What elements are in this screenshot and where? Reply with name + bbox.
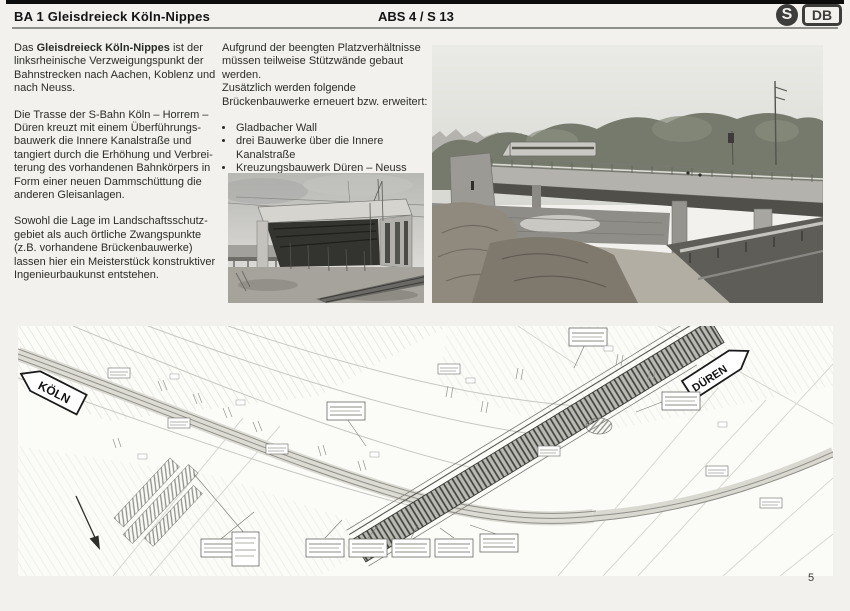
list-item: drei Bauwerke über die Innere Kanalstraß…	[235, 135, 428, 162]
construction-photo-viaduct	[432, 45, 823, 303]
construction-photo-overpass	[228, 173, 424, 303]
paragraph-intro: Das Gleisdreieck Köln-Nippes ist der lin…	[14, 42, 220, 96]
text-column-left: Das Gleisdreieck Köln-Nippes ist der lin…	[14, 42, 220, 296]
intro-bold-term: Gleisdreieck Köln-Nippes	[37, 42, 170, 54]
paragraph-landschaft: Sowohl die Lage im Landschaftsschutz­geb…	[14, 215, 220, 282]
intro-prefix: Das	[14, 42, 37, 54]
paragraph-trasse: Die Trasse der S-Bahn Köln – Horrem – Dü…	[14, 109, 220, 203]
paragraph-platz: Aufgrund der beengten Platzverhältnisse …	[222, 42, 428, 82]
list-item: Gladbacher Wall	[235, 122, 428, 135]
page-number: 5	[808, 572, 814, 584]
header-section-code: ABS 4 / S 13	[378, 9, 454, 24]
header-rule	[12, 27, 838, 29]
brochure-page: BA 1 Gleisdreieck Köln-Nippes ABS 4 / S …	[0, 0, 850, 611]
page-title: BA 1 Gleisdreieck Köln-Nippes	[14, 9, 210, 24]
track-plan-drawing: KÖLN DÜREN	[18, 326, 833, 576]
db-logo-icon: DB	[802, 4, 842, 26]
db-letters: DB	[812, 7, 832, 23]
text-column-middle: Aufgrund der beengten Platzverhältnisse …	[222, 42, 428, 176]
paragraph-zusaetzlich: Zusätzlich werden folgende Brückenbauwer…	[222, 82, 428, 109]
sbahn-logo-icon: S	[776, 4, 798, 26]
top-rule	[6, 0, 844, 4]
sbahn-letter: S	[782, 6, 793, 23]
bridge-list: Gladbacher Wall drei Bauwerke über die I…	[222, 122, 428, 176]
